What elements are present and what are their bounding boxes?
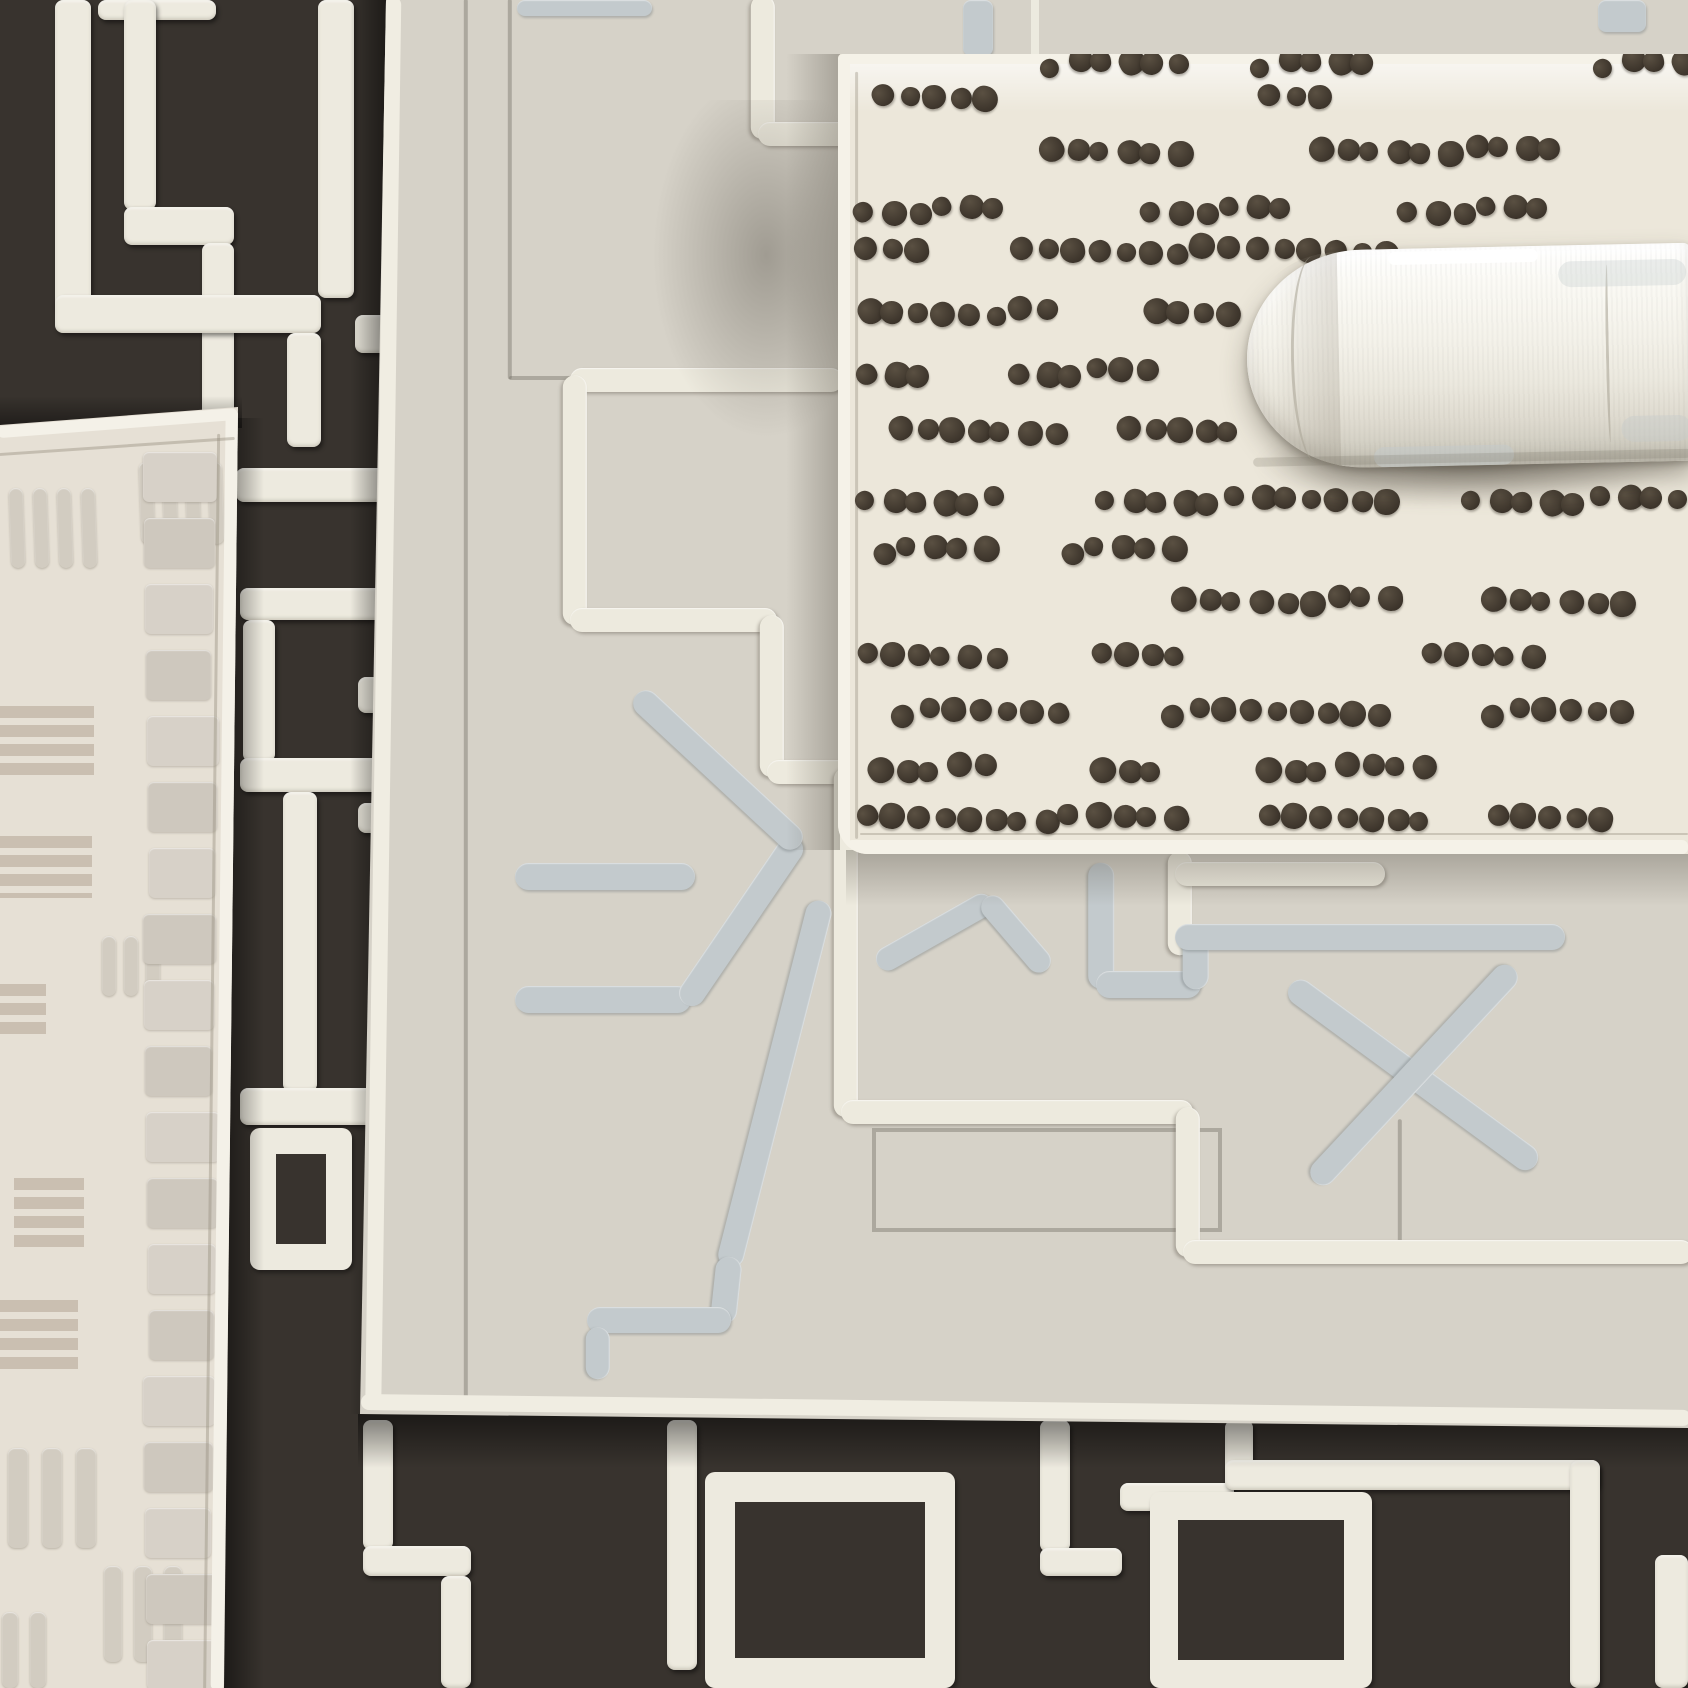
rolled-rug-group: [1245, 243, 1688, 470]
roll-tuft-mark: [1621, 415, 1688, 442]
roll-tuft-mark: [1558, 259, 1687, 288]
layered-rugs-photo: [0, 0, 1688, 1688]
rolled-white-rug: [0, 0, 1688, 1688]
